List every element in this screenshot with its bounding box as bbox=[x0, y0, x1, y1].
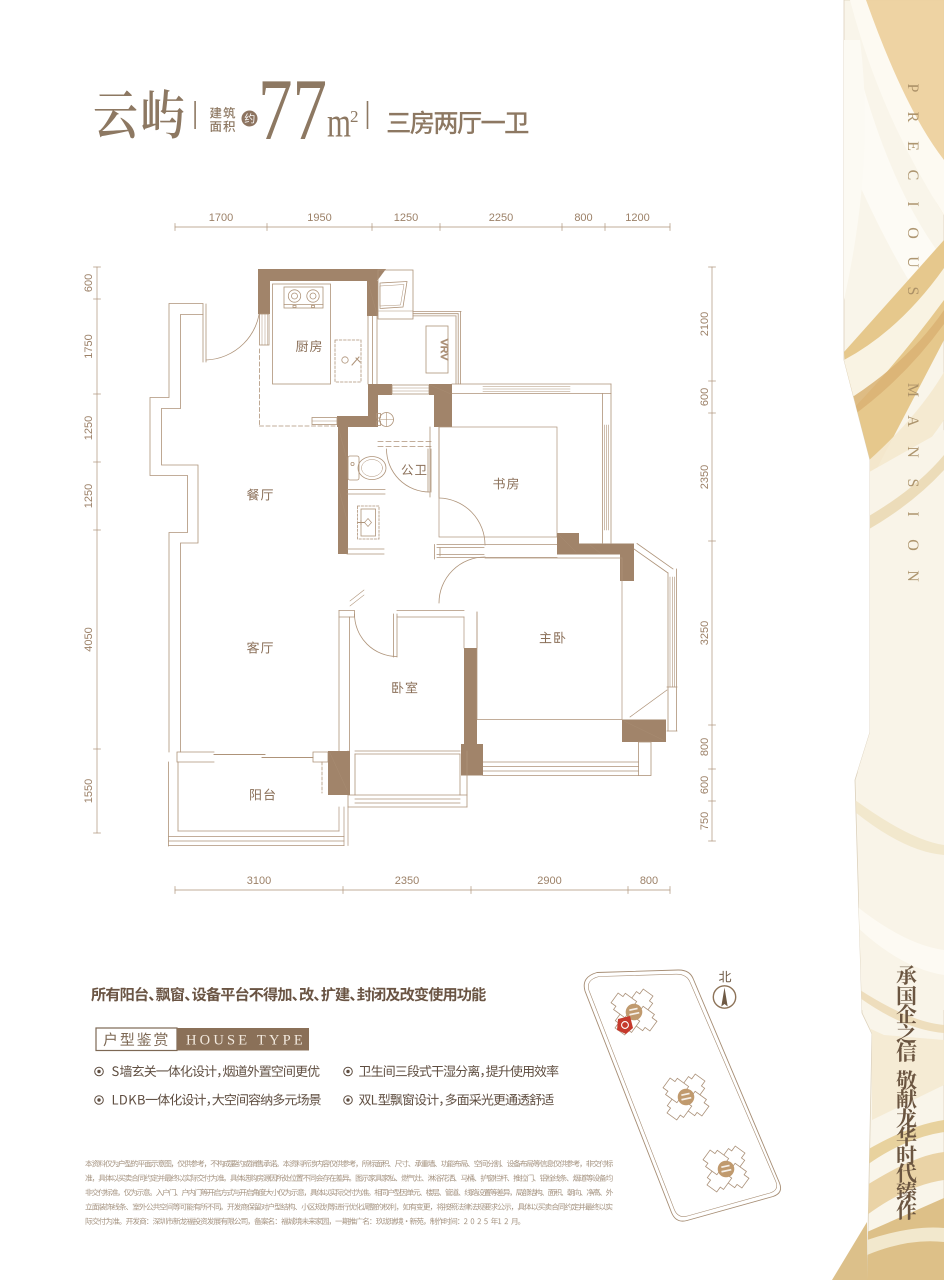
svg-text:2: 2 bbox=[350, 107, 359, 126]
svg-text:VRV: VRV bbox=[438, 339, 450, 360]
svg-text:1550: 1550 bbox=[83, 779, 95, 803]
svg-text:77: 77 bbox=[258, 62, 327, 159]
svg-text:O: O bbox=[904, 539, 921, 551]
svg-text:S: S bbox=[904, 287, 921, 296]
svg-text:S: S bbox=[904, 479, 921, 488]
svg-text:600: 600 bbox=[699, 388, 711, 406]
svg-text:I: I bbox=[904, 201, 921, 206]
svg-text:600: 600 bbox=[699, 776, 711, 794]
svg-text:1750: 1750 bbox=[83, 334, 95, 358]
svg-text:2350: 2350 bbox=[699, 465, 711, 489]
svg-text:HOUSE TYPE: HOUSE TYPE bbox=[186, 1033, 306, 1049]
svg-text:C: C bbox=[904, 170, 921, 181]
svg-text:750: 750 bbox=[699, 812, 711, 830]
svg-text:O: O bbox=[904, 227, 921, 239]
svg-text:N: N bbox=[904, 570, 921, 582]
svg-text:E: E bbox=[904, 141, 921, 151]
svg-text:2350: 2350 bbox=[395, 875, 419, 887]
svg-text:4050: 4050 bbox=[83, 627, 95, 651]
svg-text:M: M bbox=[904, 383, 921, 397]
svg-text:2250: 2250 bbox=[489, 212, 513, 224]
svg-text:I: I bbox=[904, 511, 921, 516]
svg-text:800: 800 bbox=[574, 212, 592, 224]
svg-text:U: U bbox=[904, 256, 921, 268]
svg-text:1250: 1250 bbox=[83, 484, 95, 508]
svg-text:N: N bbox=[904, 446, 921, 458]
svg-text:1200: 1200 bbox=[625, 212, 649, 224]
svg-text:P: P bbox=[904, 84, 921, 93]
svg-text:800: 800 bbox=[640, 875, 658, 887]
svg-text:800: 800 bbox=[699, 738, 711, 756]
svg-text:1250: 1250 bbox=[394, 212, 418, 224]
svg-text:600: 600 bbox=[83, 274, 95, 292]
svg-text:2900: 2900 bbox=[537, 875, 561, 887]
svg-text:2100: 2100 bbox=[699, 312, 711, 336]
svg-text:1950: 1950 bbox=[307, 212, 331, 224]
svg-text:1250: 1250 bbox=[83, 416, 95, 440]
svg-text:3100: 3100 bbox=[247, 875, 271, 887]
svg-text:m: m bbox=[327, 101, 351, 147]
svg-text:A: A bbox=[904, 415, 921, 427]
svg-text:3250: 3250 bbox=[699, 621, 711, 645]
svg-text:1700: 1700 bbox=[209, 212, 233, 224]
svg-text:R: R bbox=[904, 112, 921, 123]
